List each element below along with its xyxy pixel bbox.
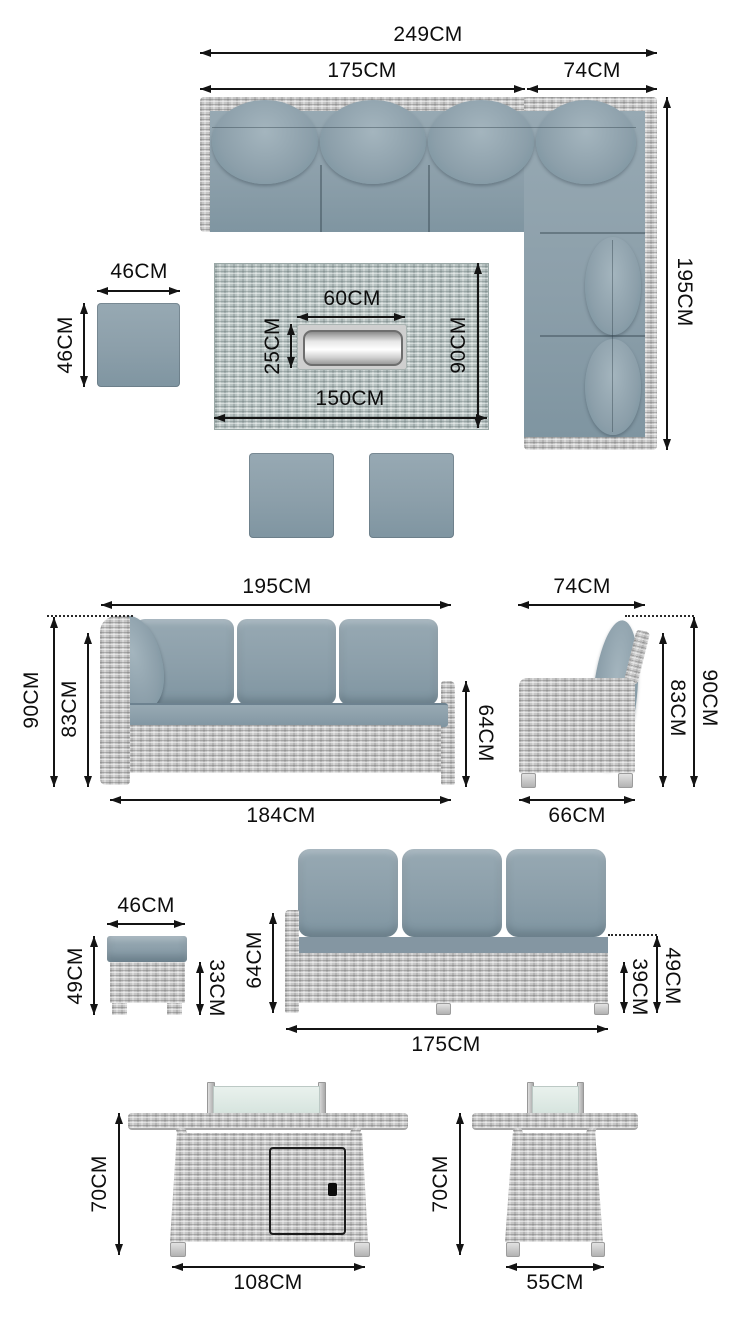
front-height-reference-dotted-line xyxy=(47,615,133,617)
plan-back-pillow xyxy=(428,100,534,184)
stool-leg xyxy=(167,1003,182,1015)
side-body-panel xyxy=(519,678,635,773)
back-view-cushion xyxy=(298,849,398,937)
plan-firepit-burner xyxy=(303,330,403,366)
back-view-base xyxy=(299,953,608,1003)
dim-table-front-height-label: 70CM xyxy=(88,1155,112,1212)
plan-seat-separator xyxy=(540,232,645,234)
side-height-reference-dotted-line xyxy=(625,615,694,617)
dim-side-total-height-label: 90CM xyxy=(697,669,721,726)
dim-plan-total-width-label: 249CM xyxy=(393,23,462,47)
dim-table-side-height-label: 70CM xyxy=(429,1155,453,1212)
dim-side-back-height-line xyxy=(662,633,664,787)
dim-plan-stool-width-line xyxy=(97,290,180,292)
dim-plan-firepit-width-line xyxy=(297,316,405,318)
dim-back-view-base-height-line xyxy=(623,962,625,1013)
plan-seat-separator xyxy=(320,165,322,232)
stool-base xyxy=(110,962,185,1003)
dim-back-view-seat-height-line xyxy=(656,936,658,1013)
plan-back-pillow xyxy=(585,339,641,435)
furniture-dimension-diagram: 249CM 175CM 74CM 195CM 46CM 46CM 60CM 25… xyxy=(0,0,748,1320)
dim-front-total-height-label: 90CM xyxy=(20,671,44,728)
dim-table-front-height-line xyxy=(118,1113,120,1255)
table-front-foot xyxy=(170,1242,186,1257)
dim-front-width-line xyxy=(101,604,451,606)
plan-seat-separator xyxy=(540,335,645,337)
dim-front-base-width-line xyxy=(110,799,451,801)
front-seat-cushion xyxy=(125,703,448,727)
table-front-glass-screen xyxy=(213,1086,320,1115)
table-side-foot xyxy=(506,1242,520,1257)
dim-side-width-label: 74CM xyxy=(553,575,610,599)
dim-plan-corner-section-line xyxy=(527,88,657,90)
dim-front-base-width-label: 184CM xyxy=(246,804,315,828)
plan-back-pillow xyxy=(536,100,636,184)
dim-side-back-height-label: 83CM xyxy=(665,679,689,736)
front-back-cushion xyxy=(237,619,336,705)
back-view-seat-reference-dotted-line xyxy=(608,934,657,936)
plan-pillow-seam xyxy=(212,127,636,128)
back-view-left-post xyxy=(285,910,299,1013)
dim-front-back-height-line xyxy=(87,633,89,787)
dim-front-width-label: 195CM xyxy=(242,575,311,599)
plan-back-pillow xyxy=(320,100,426,184)
table-side-top xyxy=(472,1113,638,1130)
back-view-foot xyxy=(594,1003,609,1015)
dim-plan-stool-depth-label: 46CM xyxy=(54,316,78,373)
table-front-door-handle xyxy=(328,1183,337,1196)
plan-seat-separator xyxy=(428,165,430,232)
front-sofa-right-post xyxy=(441,681,455,785)
dim-side-base-width-label: 66CM xyxy=(548,804,605,828)
dim-plan-depth-line xyxy=(666,97,668,450)
plan-stool xyxy=(97,303,180,387)
front-sofa-base xyxy=(113,725,441,773)
dim-front-seat-back-label: 64CM xyxy=(473,704,497,761)
dim-plan-table-depth-label: 90CM xyxy=(447,316,471,373)
back-view-seat-edge xyxy=(299,937,608,953)
dim-plan-left-section-line xyxy=(200,88,525,90)
dim-back-view-seat-height-label: 49CM xyxy=(660,947,684,1004)
dim-table-side-height-line xyxy=(459,1113,461,1255)
dim-stool-height-line xyxy=(93,936,95,1015)
dim-stool-base-height-line xyxy=(199,962,201,1015)
dim-front-total-height-line xyxy=(53,617,55,787)
dim-back-view-height-label: 64CM xyxy=(243,931,267,988)
table-side-glass-screen xyxy=(532,1086,579,1115)
dim-plan-firepit-width-label: 60CM xyxy=(323,287,380,311)
plan-stool xyxy=(369,453,454,538)
dim-back-view-base-height-label: 39CM xyxy=(627,958,651,1015)
dim-back-view-height-line xyxy=(272,913,274,1013)
stool-cushion xyxy=(107,936,187,962)
side-foot xyxy=(521,773,536,788)
table-side-foot xyxy=(591,1242,605,1257)
dim-stool-base-height-label: 33CM xyxy=(204,959,228,1016)
stool-leg xyxy=(112,1003,127,1015)
dim-plan-firepit-depth-line xyxy=(290,324,292,368)
dim-side-width-line xyxy=(518,604,645,606)
dim-plan-depth-label: 195CM xyxy=(672,257,696,326)
dim-table-side-width-line xyxy=(506,1266,604,1268)
dim-plan-left-section-label: 175CM xyxy=(327,59,396,83)
dim-table-side-width-label: 55CM xyxy=(526,1271,583,1295)
back-view-cushion xyxy=(402,849,502,937)
dim-table-front-width-label: 108CM xyxy=(233,1271,302,1295)
table-front-top xyxy=(128,1113,408,1130)
dim-back-view-width-label: 175CM xyxy=(411,1033,480,1057)
dim-back-view-width-line xyxy=(286,1028,608,1030)
dim-front-back-height-label: 83CM xyxy=(58,680,82,737)
front-sofa-arm xyxy=(100,616,130,785)
dim-side-base-width-line xyxy=(519,799,635,801)
dim-stool-width-label: 46CM xyxy=(117,894,174,918)
dim-plan-table-depth-line xyxy=(477,263,479,428)
back-view-cushion xyxy=(506,849,606,937)
plan-stool xyxy=(249,453,334,538)
side-foot xyxy=(618,773,633,788)
dim-side-total-height-line xyxy=(693,617,695,787)
plan-back-pillow xyxy=(212,100,318,184)
dim-plan-corner-section-label: 74CM xyxy=(563,59,620,83)
dim-table-front-width-line xyxy=(172,1266,365,1268)
dim-plan-total-width-line xyxy=(200,52,657,54)
plan-back-pillow xyxy=(585,237,641,335)
dim-front-seat-back-line xyxy=(465,681,467,787)
front-back-cushion xyxy=(339,619,438,705)
back-view-foot xyxy=(436,1003,451,1015)
dim-plan-stool-depth-line xyxy=(83,303,85,387)
dim-plan-table-width-line xyxy=(214,417,487,419)
dim-plan-table-width-label: 150CM xyxy=(315,387,384,411)
table-side-base xyxy=(505,1133,603,1242)
dim-plan-stool-width-label: 46CM xyxy=(110,260,167,284)
dim-stool-height-label: 49CM xyxy=(64,947,88,1004)
dim-stool-width-line xyxy=(107,923,185,925)
table-front-foot xyxy=(354,1242,370,1257)
dim-plan-firepit-depth-label: 25CM xyxy=(261,317,285,374)
